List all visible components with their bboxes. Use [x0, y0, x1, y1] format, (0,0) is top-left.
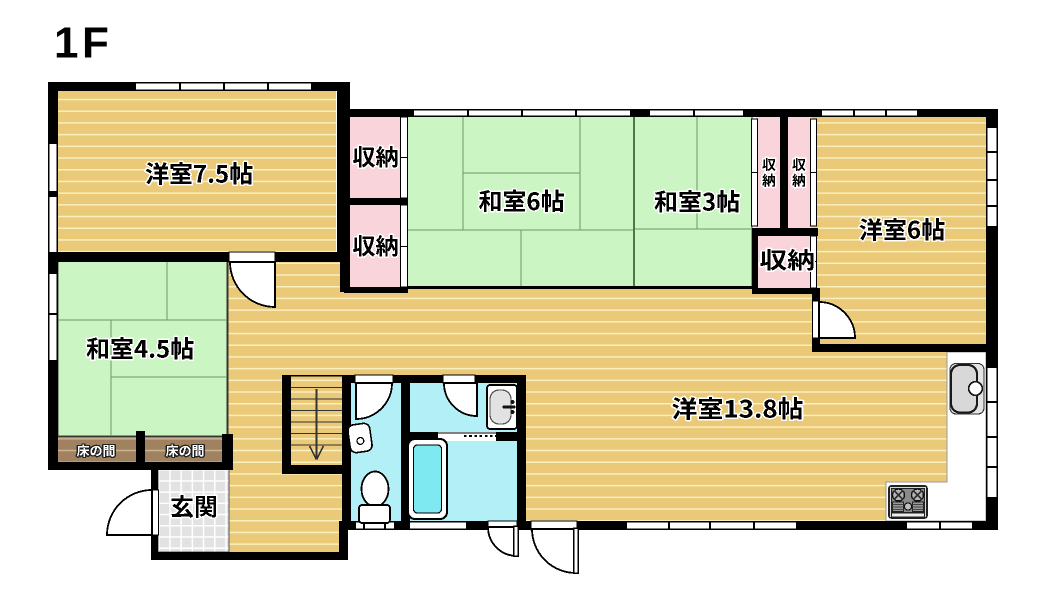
- svg-text:1F: 1F: [54, 19, 112, 68]
